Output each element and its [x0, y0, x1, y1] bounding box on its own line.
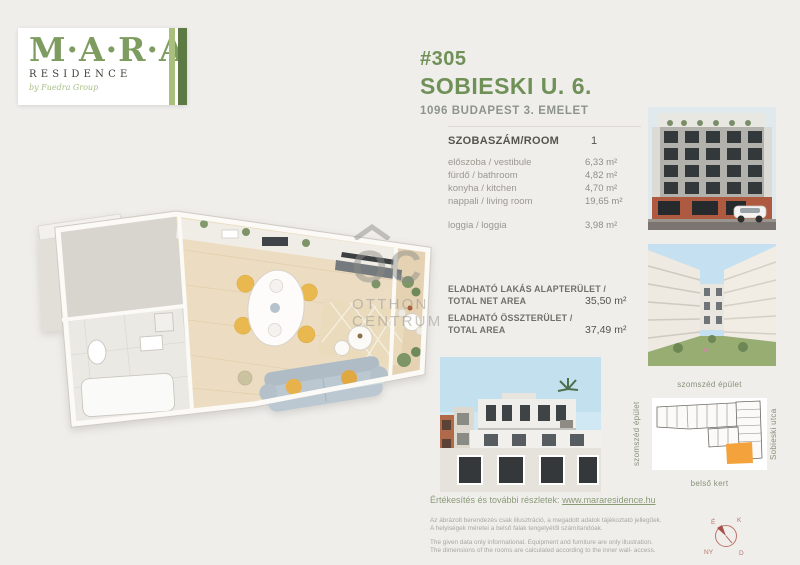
city-floor-line: 1096 BUDAPEST 3. EMELET: [420, 105, 592, 117]
table-row: konyha / kitchen 4,70 m²: [448, 182, 641, 195]
table-header-row: SZOBASZÁM/ROOM 1: [448, 135, 641, 147]
terrace-render-photo: [440, 357, 601, 492]
brand-logo-card: M·A·R·A RESIDENCE by Fuedra Group: [18, 28, 187, 105]
room-label: loggia / loggia: [448, 219, 585, 232]
brand-logo-tagline: by Fuedra Group: [29, 83, 186, 92]
table-row: előszoba / vestibule 6,33 m²: [448, 156, 641, 169]
locator-label-top: szomszéd épület: [652, 380, 767, 389]
floor-locator-diagram: [652, 398, 767, 470]
room-label: konyha / kitchen: [448, 182, 585, 195]
net-area-label-en: TOTAL NET AREA: [448, 295, 585, 307]
table-row: nappali / living room 19,65 m²: [448, 195, 641, 208]
locator-label-right: Sobieski utca: [769, 398, 778, 470]
street-facade-photo: [648, 107, 776, 230]
sales-text: Értékesítés és további részletek:: [430, 495, 562, 505]
room-count-label: SZOBASZÁM/ROOM: [448, 135, 585, 147]
total-area-label-hu: ELADHATÓ ÖSSZTERÜLET /: [448, 312, 641, 324]
room-area: 3,98 m²: [585, 219, 617, 232]
highlighted-unit: [726, 442, 753, 464]
table-row: fürdő / bathroom 4,82 m²: [448, 169, 641, 182]
disclaimer-en-line1: The given data only informational. Equip…: [430, 539, 706, 547]
residence-website-link[interactable]: www.mararesidence.hu: [562, 495, 656, 505]
net-area-label-hu: ELADHATÓ LAKÁS ALAPTERÜLET /: [448, 283, 641, 295]
logo-stripe-light-green: [169, 28, 175, 105]
logo-stripe-dark-green: [178, 28, 187, 105]
room-label: nappali / living room: [448, 195, 585, 208]
disclaimer-block: Az ábrázolt berendezés csak illusztráció…: [430, 517, 706, 556]
net-area-value: 35,50 m²: [585, 295, 626, 307]
table-row-loggia: loggia / loggia 3,98 m²: [448, 219, 641, 232]
total-area-label-en: TOTAL AREA: [448, 324, 585, 336]
sales-contact-line: Értékesítés és további részletek: www.ma…: [430, 495, 656, 505]
room-area-table: SZOBASZÁM/ROOM 1 előszoba / vestibule 6,…: [448, 126, 641, 232]
brand-logo-residence: RESIDENCE: [29, 69, 186, 80]
disclaimer-hu-line2: A helyiségek méretei a belső falak tenge…: [430, 525, 706, 533]
unit-header: #305 SOBIESKI U. 6. 1096 BUDAPEST 3. EME…: [420, 48, 592, 117]
courtyard-photo: [648, 244, 776, 366]
totals-block: ELADHATÓ LAKÁS ALAPTERÜLET / TOTAL NET A…: [448, 283, 641, 336]
compass-west-label: NY: [704, 549, 714, 556]
unit-number: #305: [420, 48, 592, 71]
room-label: fürdő / bathroom: [448, 169, 585, 182]
total-area-value: 37,49 m²: [585, 324, 626, 336]
room-area: 4,82 m²: [585, 169, 617, 182]
locator-label-left: szomszéd épület: [632, 398, 641, 470]
floorplan-3d-render: [24, 190, 438, 435]
room-label: előszoba / vestibule: [448, 156, 585, 169]
disclaimer-hu-line1: Az ábrázolt berendezés csak illusztráció…: [430, 517, 706, 525]
locator-label-bottom: belső kert: [652, 479, 767, 488]
brand-logo-wordmark: M·A·R·A: [29, 33, 186, 67]
compass-north-label: É: [711, 517, 716, 526]
compass-south-label: D: [739, 550, 744, 557]
room-count-value: 1: [585, 135, 597, 147]
disclaimer-en-line2: The dimensions of the rooms are calculat…: [430, 547, 706, 555]
room-area: 19,65 m²: [585, 195, 623, 208]
room-area: 4,70 m²: [585, 182, 617, 195]
compass-rose-icon: É K NY D: [701, 509, 753, 561]
datasheet-page: M·A·R·A RESIDENCE by Fuedra Group #305 S…: [0, 0, 800, 565]
street-address: SOBIESKI U. 6.: [420, 73, 592, 100]
compass-east-label: K: [737, 517, 742, 524]
room-area: 6,33 m²: [585, 156, 617, 169]
